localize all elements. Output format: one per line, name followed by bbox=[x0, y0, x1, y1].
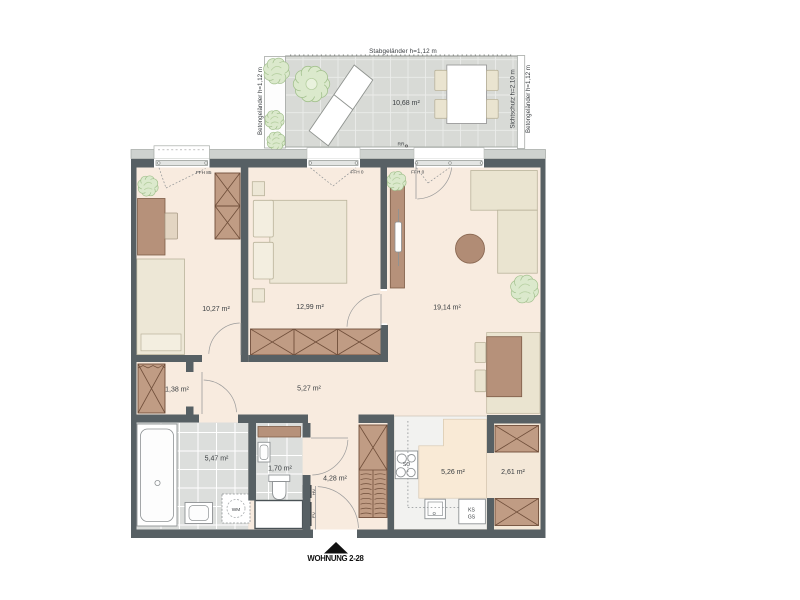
svg-text:19,14 m²: 19,14 m² bbox=[433, 305, 461, 312]
svg-text:2,61 m²: 2,61 m² bbox=[501, 469, 525, 476]
svg-text:1,70 m²: 1,70 m² bbox=[268, 466, 292, 473]
svg-text:RR: RR bbox=[397, 141, 405, 147]
svg-text:GS: GS bbox=[468, 515, 476, 521]
svg-text:Betongeländer h=1,12 m: Betongeländer h=1,12 m bbox=[525, 65, 532, 133]
svg-text:Stabgeländer h=1,12 m: Stabgeländer h=1,12 m bbox=[369, 48, 437, 55]
svg-text:FFH 0: FFH 0 bbox=[411, 170, 424, 175]
svg-text:FFH 85: FFH 85 bbox=[196, 170, 212, 175]
svg-text:Sichtschutz h=2,10 m: Sichtschutz h=2,10 m bbox=[510, 69, 517, 128]
svg-text:5,26 m²: 5,26 m² bbox=[441, 469, 465, 476]
svg-text:Betongeländer h=1,12 m: Betongeländer h=1,12 m bbox=[257, 67, 264, 135]
svg-text:KS: KS bbox=[468, 508, 475, 514]
svg-text:5,47 m²: 5,47 m² bbox=[205, 456, 229, 463]
svg-text:SO: SO bbox=[403, 462, 410, 468]
svg-text:10,68 m²: 10,68 m² bbox=[392, 100, 420, 107]
svg-text:WOHNUNG 2-28: WOHNUNG 2-28 bbox=[307, 554, 364, 563]
svg-text:10,27 m²: 10,27 m² bbox=[202, 306, 230, 313]
svg-text:WM: WM bbox=[232, 507, 241, 513]
svg-text:FFH 0: FFH 0 bbox=[350, 170, 363, 175]
svg-text:5,27 m²: 5,27 m² bbox=[297, 386, 321, 393]
svg-text:12,99 m²: 12,99 m² bbox=[296, 304, 324, 311]
svg-text:1,38 m²: 1,38 m² bbox=[165, 387, 189, 394]
svg-text:4,28 m²: 4,28 m² bbox=[323, 476, 347, 483]
